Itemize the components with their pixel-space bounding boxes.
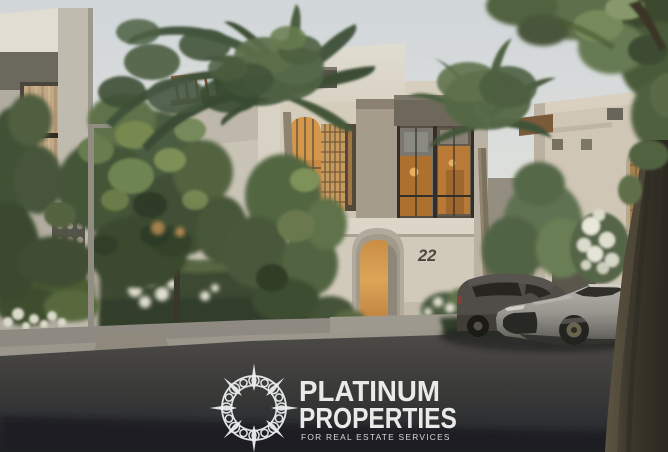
svg-text:PROPERTIES: PROPERTIES	[299, 402, 457, 434]
svg-text:22: 22	[417, 247, 436, 265]
svg-text:FOR REAL ESTATE SERVICES: FOR REAL ESTATE SERVICES	[301, 432, 451, 442]
